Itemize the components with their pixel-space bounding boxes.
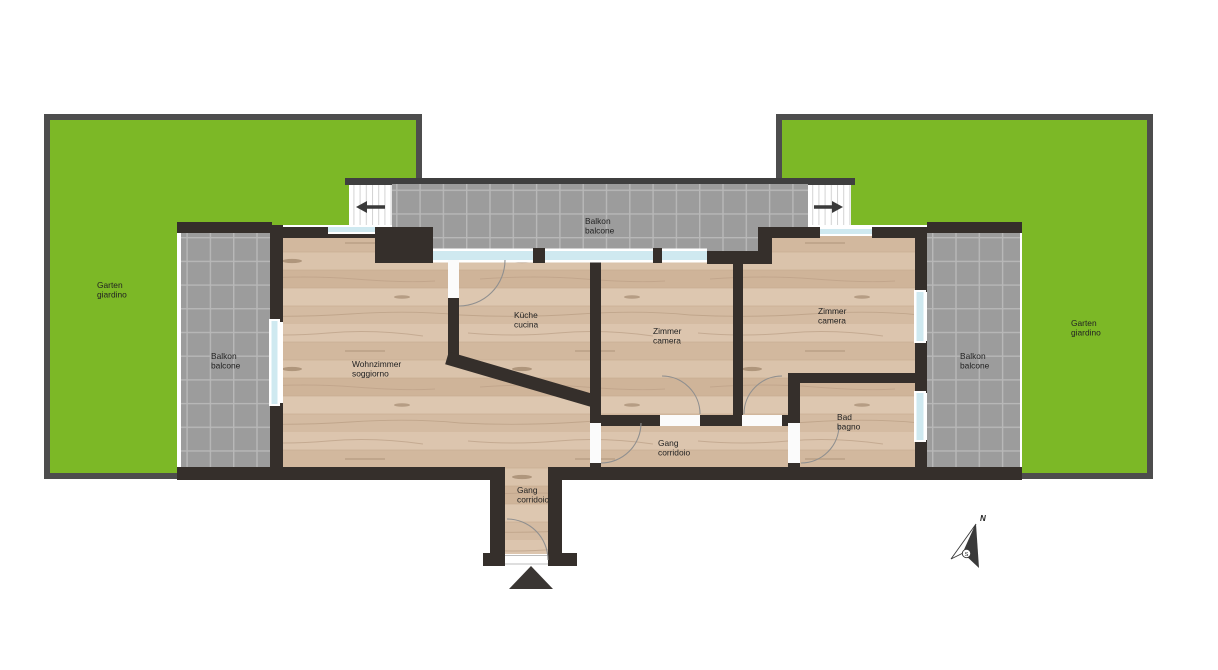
wall-kitchen-lower: [448, 298, 459, 360]
wall-bottom-right: [548, 467, 1022, 480]
window-band-glass: [433, 251, 707, 260]
hallway-label-it: corridoio: [658, 448, 690, 458]
bathroom-label-de: Bad: [837, 412, 852, 422]
wall-balcony-right-top: [927, 222, 1022, 233]
living-room-label-it: soggiorno: [352, 369, 389, 379]
hallway-entry-label-it: corridoio: [517, 495, 549, 505]
kitchen-label-it: cucina: [514, 320, 539, 330]
door-gap-bedroom-right: [742, 415, 782, 426]
balcony-left-label: Balkon balcone: [211, 351, 241, 371]
garden-right-label-de: Garten: [1071, 318, 1097, 328]
garden-right-label-it: giardino: [1071, 328, 1101, 338]
stairs-right-treads: [808, 185, 851, 225]
balcony-right-tiles: [927, 230, 1020, 468]
wall-right-outer-b: [915, 341, 927, 393]
stairs-right: [808, 185, 851, 225]
top-balcony-parapet: [345, 178, 855, 185]
door-gap-kitchen: [448, 260, 459, 298]
balcony-top-label-it: balcone: [585, 226, 615, 236]
door-gap-living-hall: [590, 423, 601, 463]
wall-right-outer-c: [915, 440, 927, 467]
stairs-left-treads: [349, 185, 392, 225]
bedroom-right-label-de: Zimmer: [818, 306, 847, 316]
garden-left-label-it: giardino: [97, 290, 127, 300]
wall-top-right-a: [772, 227, 820, 238]
door-gap-bedroom-middle: [660, 415, 700, 426]
balcony-right-label-de: Balkon: [960, 351, 986, 361]
window-left-glass: [272, 321, 278, 404]
wall-step-right-upper: [758, 227, 772, 264]
living-room-label-de: Wohnzimmer: [352, 359, 401, 369]
bedroom-right-label: Zimmer camera: [818, 306, 847, 326]
wall-entry-foot-left: [483, 553, 490, 566]
balcony-top-label-de: Balkon: [585, 216, 611, 226]
wall-step-left-block: [375, 227, 433, 263]
floor-plan-page: N S Garten giardino Garten giardino Balk…: [0, 0, 1218, 670]
balcony-left-label-de: Balkon: [211, 351, 237, 361]
wall-balcony-left-top: [177, 222, 272, 233]
balcony-left-label-it: balcone: [211, 361, 241, 371]
bedroom-middle-label: Zimmer camera: [653, 326, 682, 346]
wall-bedroom-divider: [733, 263, 743, 416]
wall-bottom-left: [177, 467, 505, 480]
wall-hallway-a: [601, 415, 660, 426]
wall-top-right-b: [872, 227, 917, 238]
kitchen-label-de: Küche: [514, 310, 538, 320]
floor-plan-canvas: N S Garten giardino Garten giardino Balk…: [0, 0, 1218, 670]
window-right-lower-glass: [917, 393, 924, 440]
wall-bath-top: [788, 373, 918, 383]
wall-entry-stub-left: [490, 467, 505, 566]
window-right-upper-glass: [917, 292, 924, 341]
bathroom-label-it: bagno: [837, 422, 861, 432]
stairs-left: [349, 185, 392, 225]
compass-south-label: S: [965, 552, 969, 558]
balcony-right-label: Balkon balcone: [960, 351, 990, 371]
balcony-left-tiles: [181, 230, 270, 468]
hallway-label-de: Gang: [658, 438, 679, 448]
bedroom-middle-label-it: camera: [653, 336, 681, 346]
wall-left-outer-lower: [270, 403, 283, 467]
balcony-top-label: Balkon balcone: [585, 216, 615, 236]
compass-north-label: N: [980, 514, 986, 523]
wall-left-outer-upper: [270, 225, 283, 322]
door-gap-bath: [788, 423, 800, 463]
window-top-right-glass: [820, 229, 872, 234]
balcony-right-label-it: balcone: [960, 361, 990, 371]
garden-left-label-de: Garten: [97, 280, 123, 290]
bedroom-middle-label-de: Zimmer: [653, 326, 682, 336]
window-top-left-glass: [328, 227, 375, 232]
window-band-mullion-1: [533, 248, 545, 263]
window-band-mullion-2: [653, 248, 662, 263]
bedroom-right-label-it: camera: [818, 316, 846, 326]
wall-hallway-b: [700, 415, 742, 426]
wall-entry-stub-right: [548, 467, 562, 566]
wall-kitchen-bedroom-divider: [590, 251, 601, 421]
hallway-entry-label-de: Gang: [517, 485, 538, 495]
wall-entry-foot-right: [562, 553, 577, 566]
wall-right-outer-a: [915, 227, 927, 292]
kitchen-label: Küche cucina: [514, 310, 539, 330]
balcony-top-tiles-lower: [392, 227, 770, 251]
